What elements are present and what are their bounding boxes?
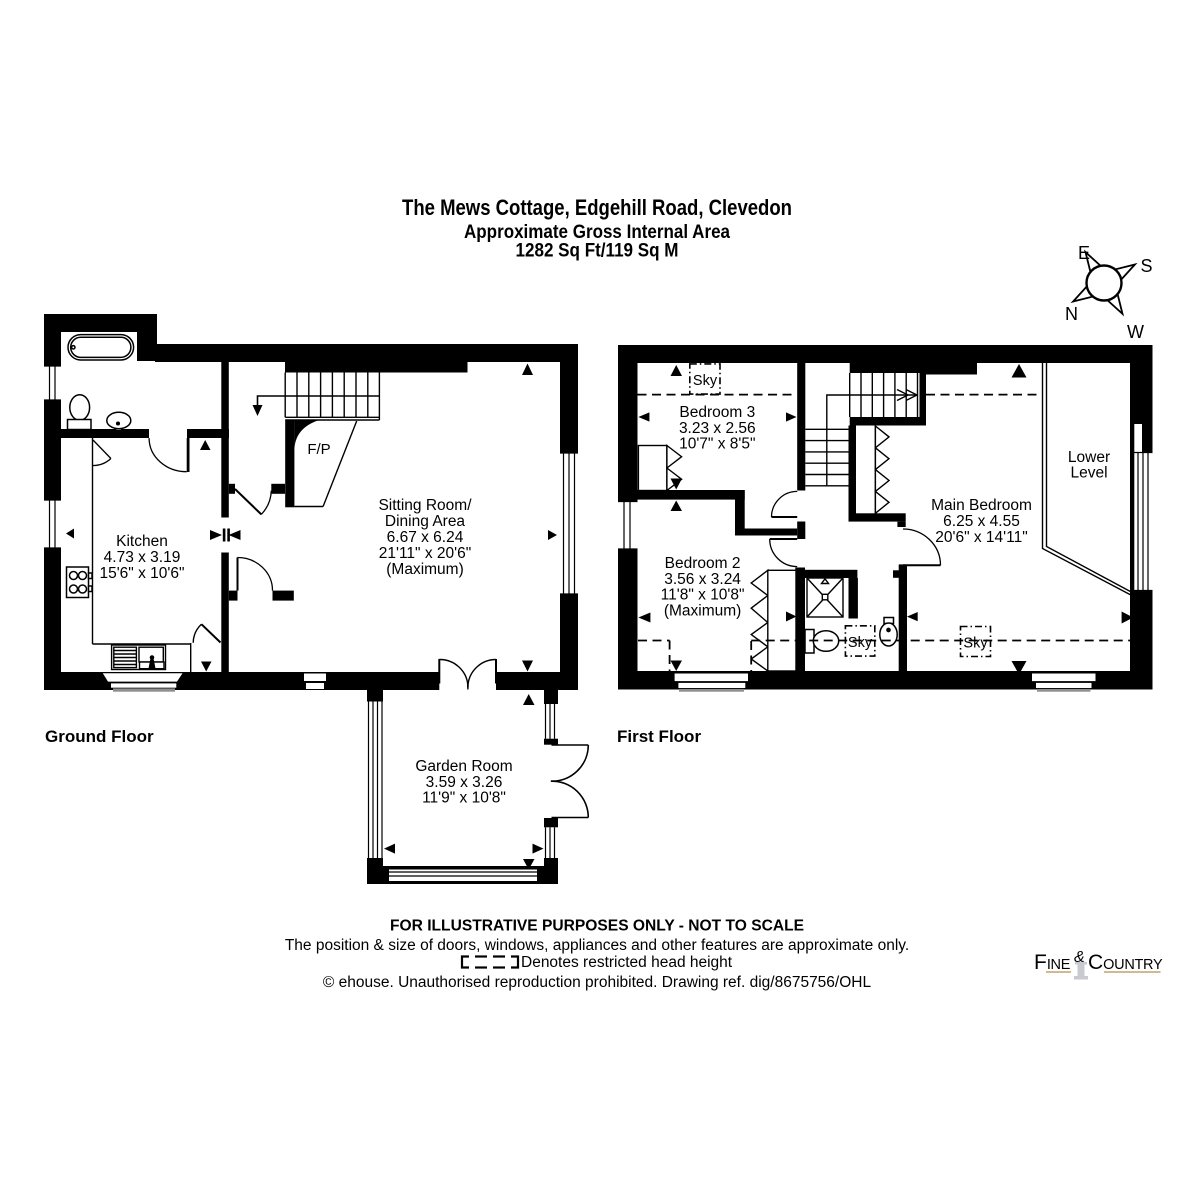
svg-text:E: E bbox=[1078, 243, 1090, 263]
svg-text:3.23 x 2.56: 3.23 x 2.56 bbox=[679, 420, 756, 437]
svg-text:S: S bbox=[1140, 256, 1152, 276]
svg-text:Sitting Room/: Sitting Room/ bbox=[378, 497, 472, 514]
svg-text:Garden Room: Garden Room bbox=[415, 758, 512, 775]
svg-text:Kitchen: Kitchen bbox=[116, 533, 168, 550]
svg-text:Main Bedroom: Main Bedroom bbox=[931, 497, 1032, 514]
svg-text:11'9" x 10'8": 11'9" x 10'8" bbox=[422, 790, 506, 807]
svg-text:6.25 x 4.55: 6.25 x 4.55 bbox=[943, 513, 1020, 530]
svg-text:(Maximum): (Maximum) bbox=[386, 561, 464, 578]
svg-text:21'11" x 20'6": 21'11" x 20'6" bbox=[379, 545, 471, 562]
svg-text:Dining Area: Dining Area bbox=[385, 513, 466, 530]
svg-text:Ground Floor: Ground Floor bbox=[45, 727, 154, 746]
svg-text:4.73 x 3.19: 4.73 x 3.19 bbox=[104, 549, 181, 566]
svg-text:20'6" x 14'11": 20'6" x 14'11" bbox=[935, 529, 1027, 546]
svg-text:Bedroom 3: Bedroom 3 bbox=[679, 404, 755, 421]
svg-text:FOR ILLUSTRATIVE PURPOSES ONLY: FOR ILLUSTRATIVE PURPOSES ONLY - NOT TO … bbox=[390, 918, 804, 935]
svg-text:Lower: Lower bbox=[1068, 449, 1110, 466]
svg-text:F/P: F/P bbox=[307, 441, 330, 458]
svg-text:Denotes restricted head height: Denotes restricted head height bbox=[521, 954, 733, 971]
svg-text:Sky: Sky bbox=[963, 636, 988, 652]
svg-text:(Maximum): (Maximum) bbox=[664, 603, 742, 620]
svg-text:Sky: Sky bbox=[693, 373, 718, 389]
svg-text:15'6" x 10'6": 15'6" x 10'6" bbox=[99, 565, 184, 582]
svg-text:11'8" x 10'8": 11'8" x 10'8" bbox=[661, 587, 745, 604]
svg-text:3.56 x 3.24: 3.56 x 3.24 bbox=[664, 571, 741, 588]
svg-text:3.59 x 3.26: 3.59 x 3.26 bbox=[426, 774, 503, 791]
svg-text:N: N bbox=[1065, 304, 1078, 324]
svg-text:1282 Sq Ft/119 Sq M: 1282 Sq Ft/119 Sq M bbox=[516, 241, 679, 262]
svg-text:The Mews Cottage, Edgehill Roa: The Mews Cottage, Edgehill Road, Clevedo… bbox=[402, 195, 792, 220]
svg-text:First Floor: First Floor bbox=[617, 727, 701, 746]
svg-text:Bedroom 2: Bedroom 2 bbox=[665, 555, 741, 572]
svg-text:The position & size of doors,: The position & size of doors, windows, a… bbox=[285, 937, 909, 954]
svg-text:Level: Level bbox=[1070, 465, 1107, 482]
svg-text:10'7" x 8'5": 10'7" x 8'5" bbox=[679, 436, 755, 453]
svg-text:Sky: Sky bbox=[848, 635, 873, 651]
svg-text:© ehouse. Unauthorised reprodu: © ehouse. Unauthorised reproduction proh… bbox=[323, 974, 872, 991]
svg-text:6.67 x 6.24: 6.67 x 6.24 bbox=[387, 529, 464, 546]
svg-text:W: W bbox=[1127, 322, 1144, 342]
